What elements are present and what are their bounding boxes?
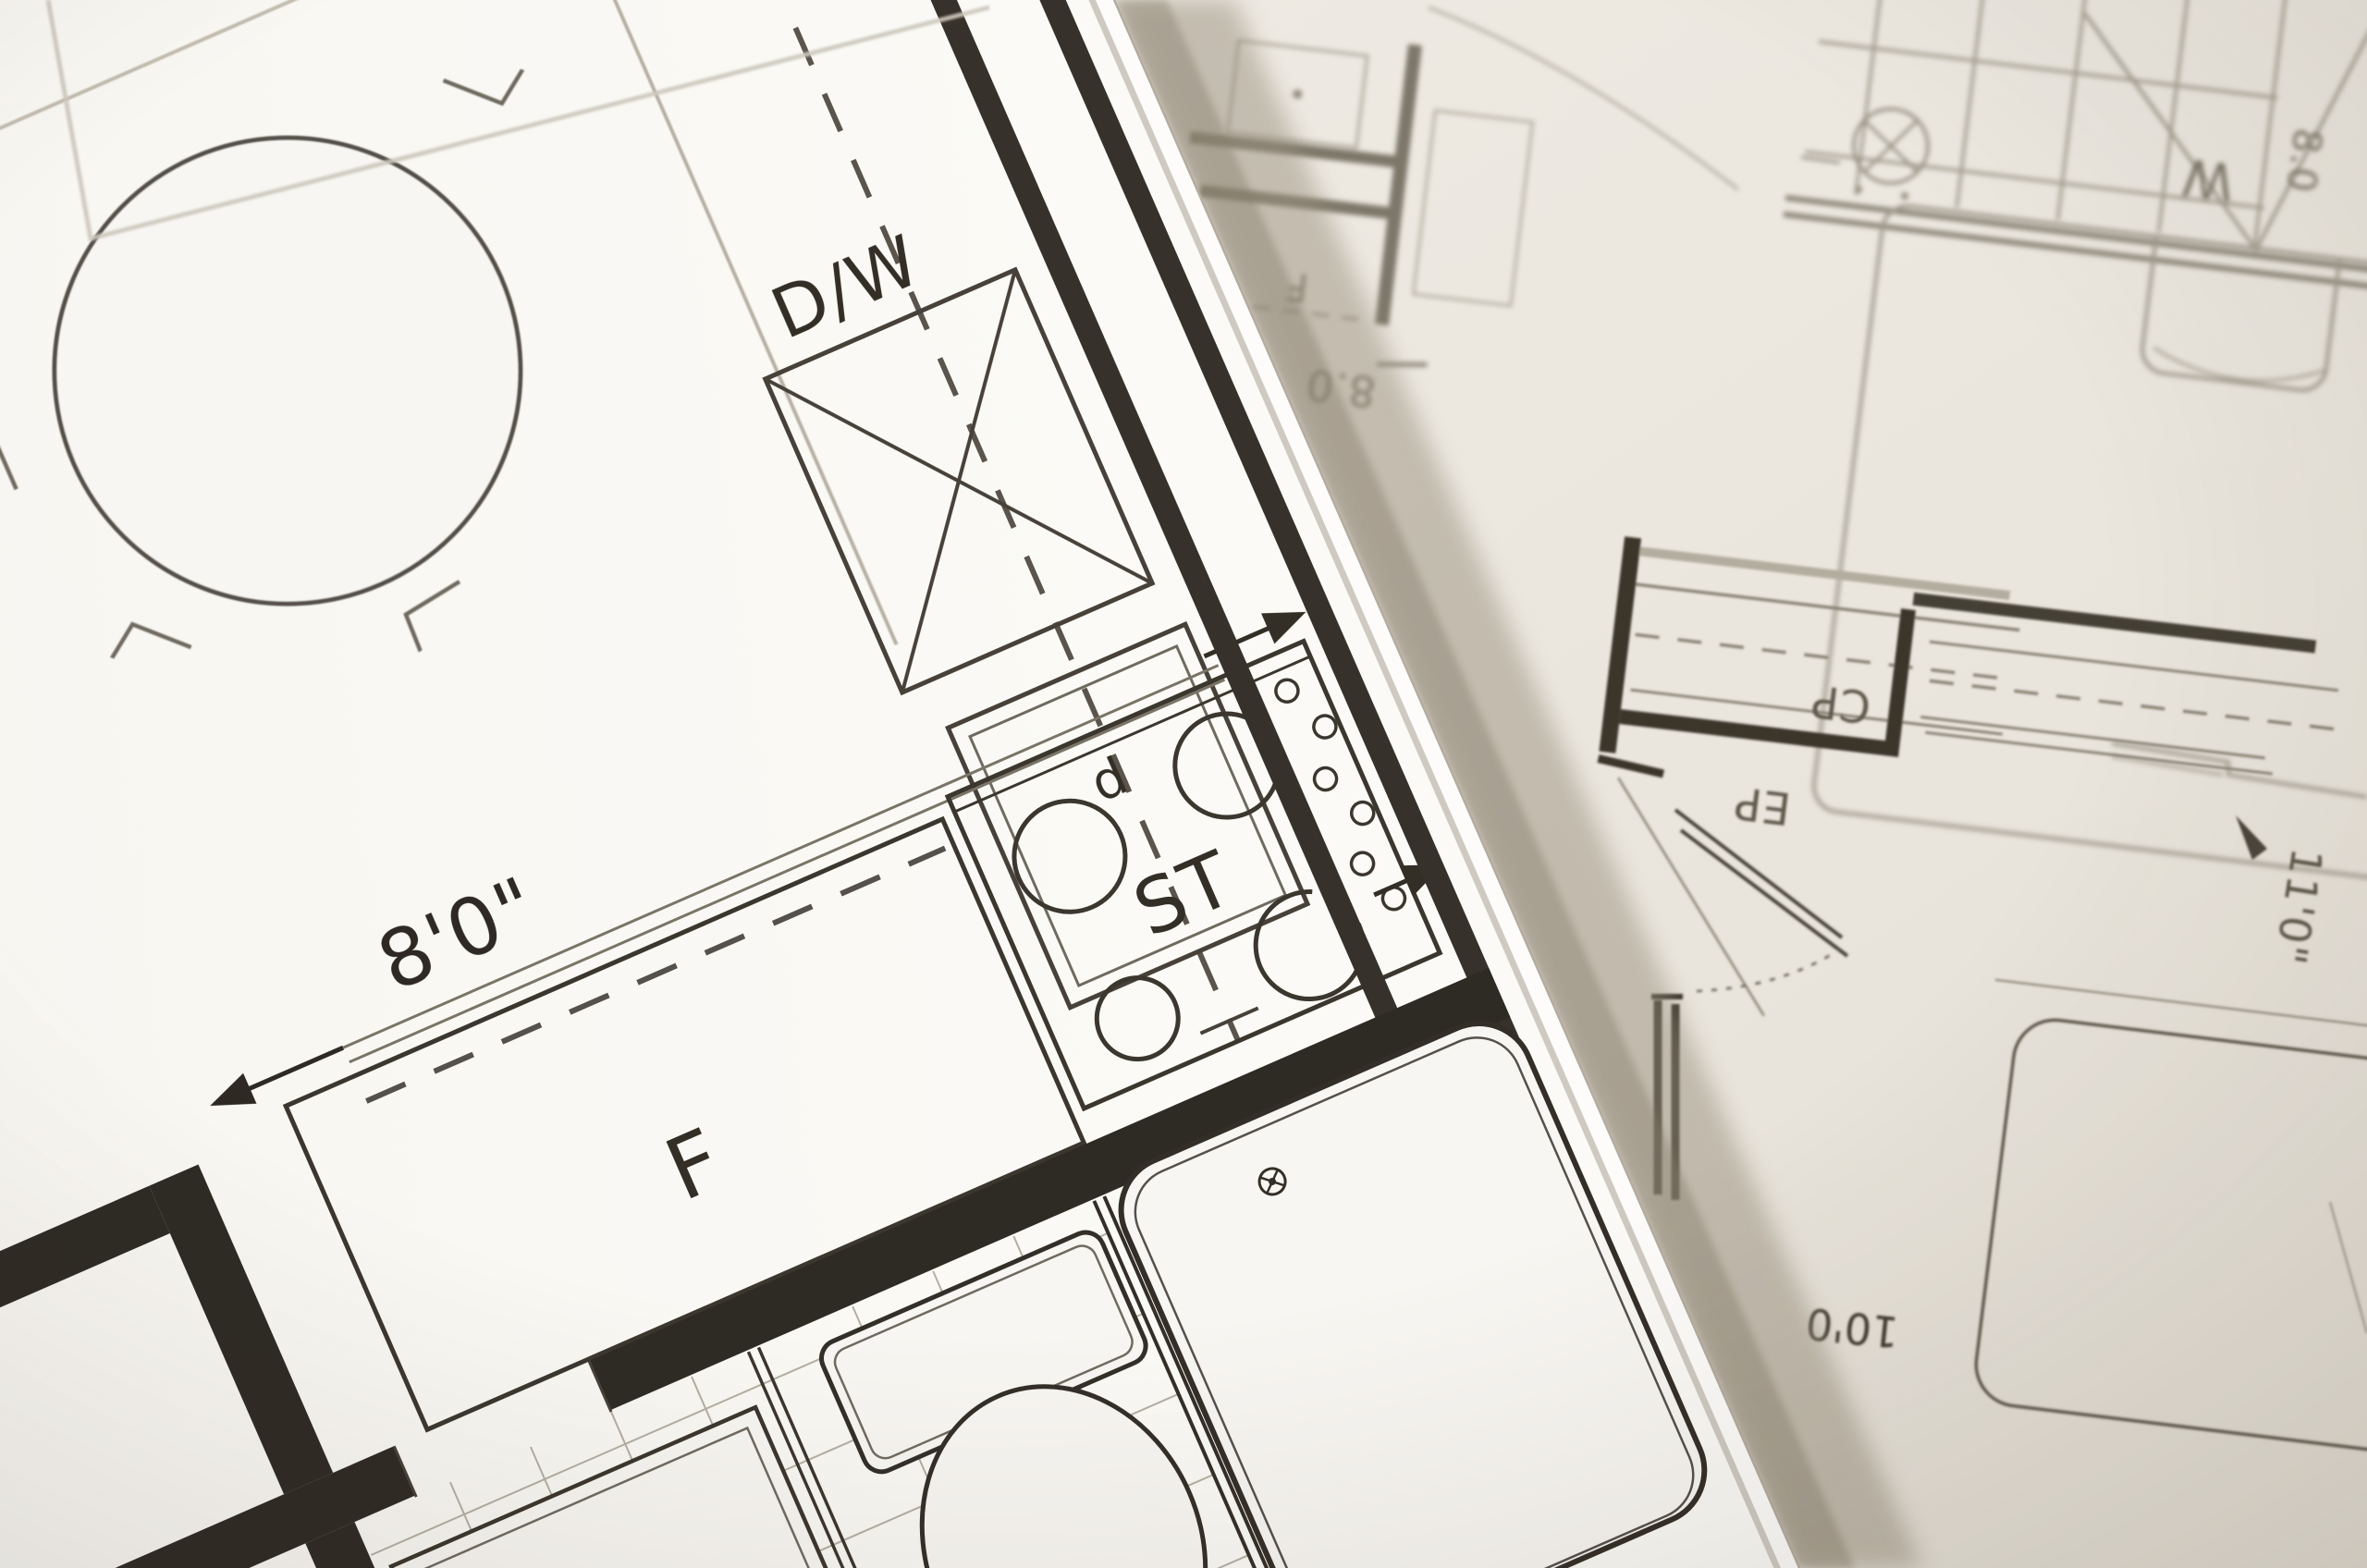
- blueprint-scene: W 8.0 F 8.0: [0, 0, 2367, 1568]
- blueprint-photo: W 8.0 F 8.0: [0, 0, 2367, 1568]
- vignette: [0, 0, 2367, 1568]
